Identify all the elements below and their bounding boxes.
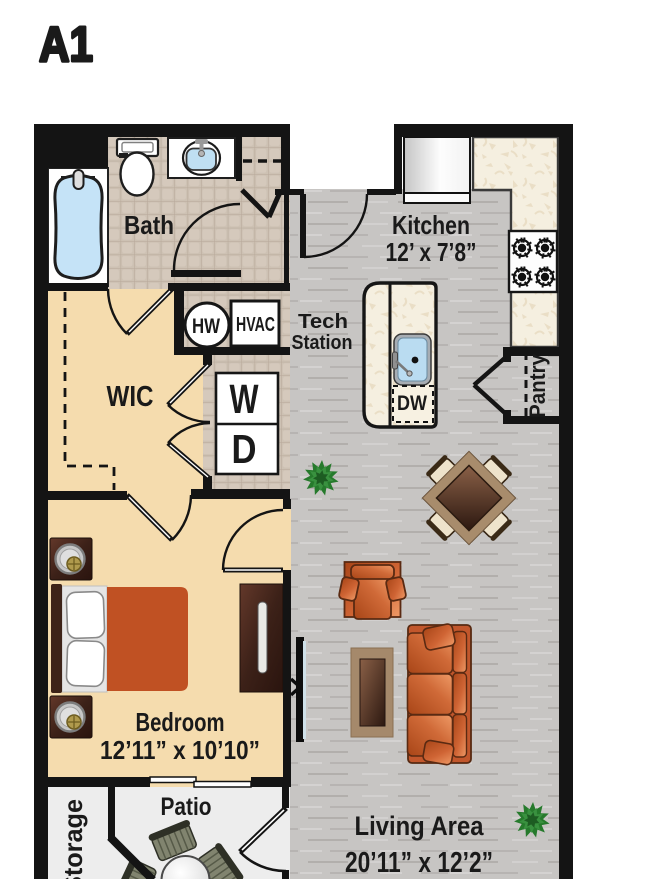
svg-text:HVAC: HVAC: [236, 314, 275, 336]
svg-text:Pantry: Pantry: [525, 353, 550, 418]
svg-text:Storage: Storage: [58, 799, 88, 879]
svg-text:12’ x 7’8”: 12’ x 7’8”: [386, 237, 477, 267]
svg-text:Bath: Bath: [124, 210, 174, 240]
svg-text:W: W: [230, 376, 259, 422]
svg-text:WIC: WIC: [107, 381, 154, 413]
svg-text:12’11” x 10’10”: 12’11” x 10’10”: [100, 735, 260, 765]
svg-text:HW: HW: [192, 314, 221, 338]
svg-text:Living Area: Living Area: [355, 811, 485, 841]
svg-text:D: D: [232, 426, 257, 472]
svg-text:Bedroom: Bedroom: [136, 707, 225, 737]
svg-text:DW: DW: [397, 392, 427, 415]
svg-text:Tech: Tech: [298, 310, 348, 333]
svg-text:Station: Station: [292, 331, 353, 354]
svg-text:20’11” x 12’2”: 20’11” x 12’2”: [345, 847, 493, 879]
svg-text:Patio: Patio: [161, 793, 212, 821]
svg-text:Kitchen: Kitchen: [392, 210, 470, 240]
svg-text:A1: A1: [39, 18, 93, 72]
